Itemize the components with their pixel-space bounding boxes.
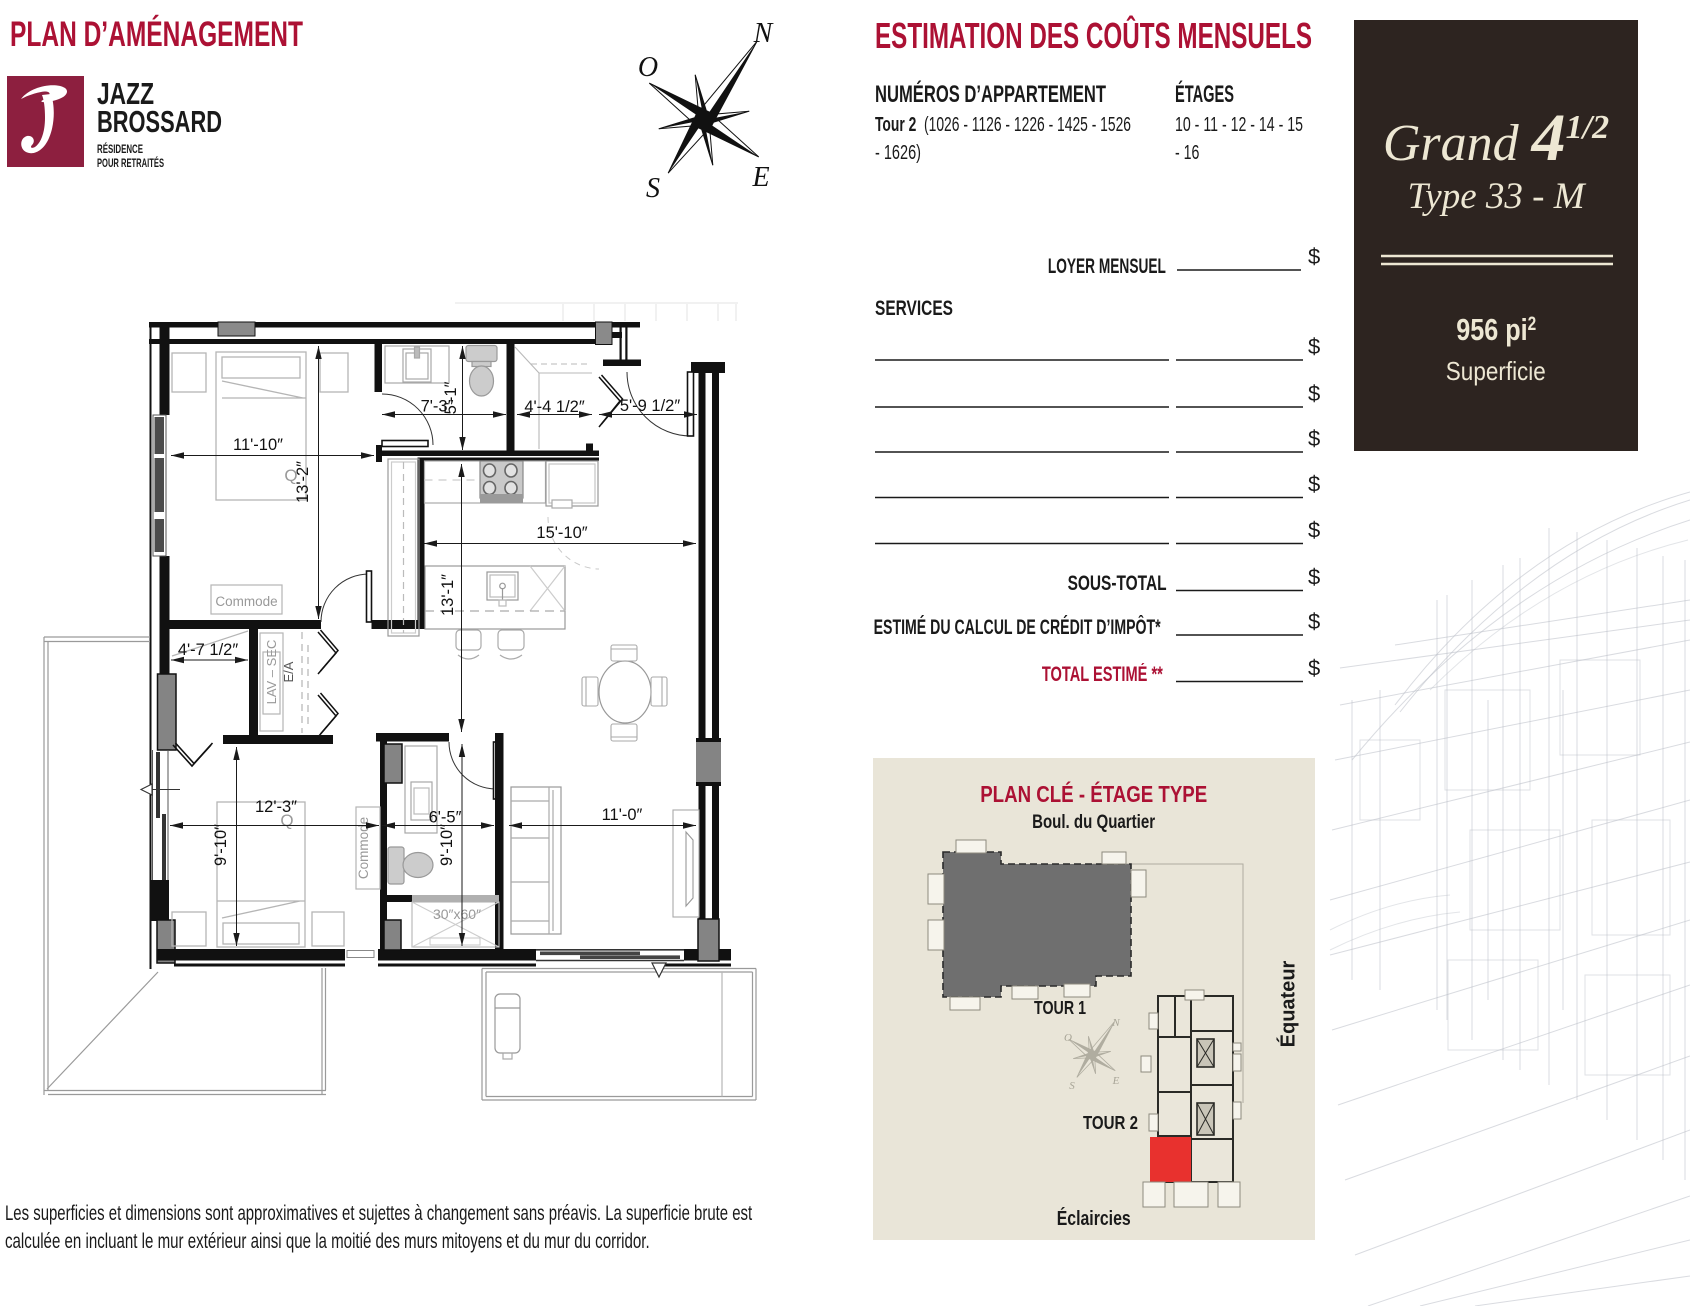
svg-text:13'-2″: 13'-2″	[294, 461, 312, 503]
svg-text:S: S	[646, 173, 660, 204]
svg-text:N: N	[1111, 1017, 1120, 1029]
svg-text:15'-10″: 15'-10″	[536, 524, 587, 542]
svg-text:E: E	[751, 162, 769, 193]
svg-text:11'-10″: 11'-10″	[233, 436, 283, 454]
svg-text:O: O	[1064, 1032, 1072, 1044]
svg-text:11'-0″: 11'-0″	[602, 806, 643, 824]
svg-text:5'-1″: 5'-1″	[442, 381, 460, 414]
svg-text:4'-7 1/2″: 4'-7 1/2″	[178, 641, 239, 659]
svg-text:O: O	[638, 52, 658, 83]
svg-text:12'-3″: 12'-3″	[255, 798, 297, 816]
svg-text:N: N	[753, 18, 774, 49]
svg-text:Commode: Commode	[215, 594, 277, 609]
svg-text:LAV – SEC: LAV – SEC	[264, 640, 279, 705]
svg-text:E: E	[1112, 1075, 1120, 1087]
svg-text:6'-5″: 6'-5″	[429, 809, 462, 827]
svg-text:13'-1″: 13'-1″	[439, 574, 457, 616]
svg-text:E/A: E/A	[281, 661, 296, 682]
svg-text:9'-10″: 9'-10″	[438, 824, 456, 866]
svg-text:30″x60″: 30″x60″	[433, 906, 481, 922]
svg-text:5'-9 1/2″: 5'-9 1/2″	[620, 397, 681, 415]
svg-text:4'-4 1/2″: 4'-4 1/2″	[524, 398, 585, 416]
svg-text:S: S	[1069, 1080, 1075, 1092]
svg-text:9'-10″: 9'-10″	[212, 824, 230, 866]
